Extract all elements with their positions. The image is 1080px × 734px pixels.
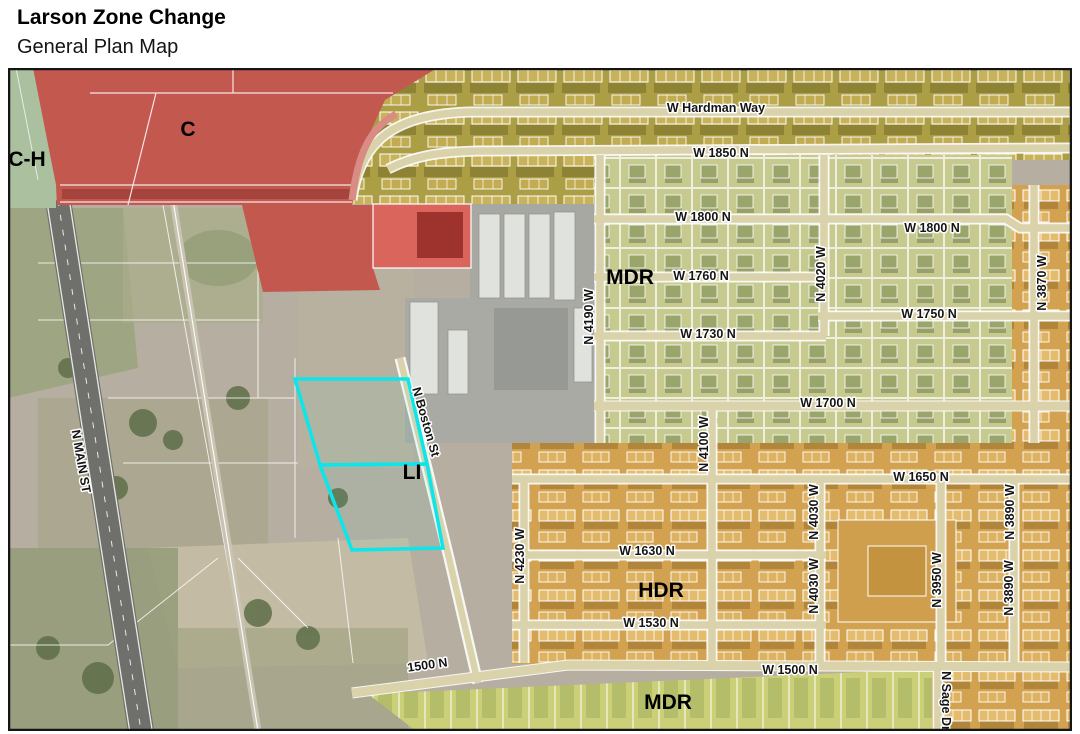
commercial-building-pad	[417, 212, 463, 258]
street-label-w-1650-n: W 1650 N	[893, 470, 949, 484]
zone-label-c: C	[180, 118, 195, 141]
street-label-w-1530-n: W 1530 N	[623, 616, 679, 630]
zone-label-mdr-south: MDR	[644, 691, 692, 714]
street-label-n-3890-w-south: N 3890 W	[1002, 560, 1016, 616]
street-label-n-4030-w-north: N 4030 W	[807, 484, 821, 540]
street-label-n-3890-w-north: N 3890 W	[1003, 484, 1017, 540]
street-label-w-1630-n: W 1630 N	[619, 544, 675, 558]
street-label-w-1500-n: W 1500 N	[762, 663, 818, 677]
street-label-n-3950-w: N 3950 W	[930, 552, 944, 608]
street-label-n-3870-w: N 3870 W	[1035, 255, 1049, 311]
page-subtitle: General Plan Map	[17, 36, 178, 59]
zone-mdr-olive-row2	[348, 160, 596, 204]
zone-label-li: LI	[403, 461, 422, 484]
street-label-w-1730-n: W 1730 N	[680, 327, 736, 341]
street-label-w-1800-n-east: W 1800 N	[904, 221, 960, 235]
street-label-n-4020-w: N 4020 W	[814, 246, 828, 302]
street-label-n-4030-w-south: N 4030 W	[807, 558, 821, 614]
page-title: Larson Zone Change	[17, 6, 226, 30]
street-label-w-hardman-way: W Hardman Way	[667, 101, 765, 115]
general-plan-map: W Hardman Way W 1850 N W 1800 N W 1800 N…	[8, 68, 1072, 731]
zone-label-hdr: HDR	[638, 579, 684, 602]
map-canvas: W Hardman Way W 1850 N W 1800 N W 1800 N…	[8, 68, 1072, 731]
street-label-w-1800-n-west: W 1800 N	[675, 210, 731, 224]
street-label-n-4100-w: N 4100 W	[697, 416, 711, 472]
zone-label-ch: C-H	[8, 148, 45, 171]
street-label-w-1700-n: W 1700 N	[800, 396, 856, 410]
page: Larson Zone Change General Plan Map	[0, 0, 1080, 734]
street-label-w-1750-n: W 1750 N	[901, 307, 957, 321]
zone-label-mdr: MDR	[606, 266, 654, 289]
street-label-n-sage-dr: N Sage Dr	[939, 671, 953, 731]
street-label-w-1760-n: W 1760 N	[673, 269, 729, 283]
street-label-n-4190-w: N 4190 W	[582, 289, 596, 345]
zone-commercial-c-south	[242, 205, 380, 292]
street-label-w-1850-n: W 1850 N	[693, 146, 749, 160]
street-label-n-4230-w: N 4230 W	[513, 528, 527, 584]
